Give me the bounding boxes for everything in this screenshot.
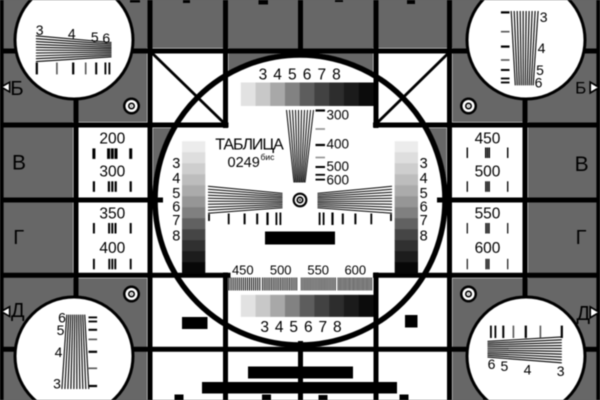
svg-text:6: 6: [102, 30, 110, 46]
svg-text:6: 6: [488, 356, 496, 372]
svg-text:3: 3: [557, 363, 565, 379]
svg-text:7: 7: [172, 213, 180, 229]
svg-text:6: 6: [303, 67, 312, 84]
svg-text:350: 350: [99, 206, 125, 223]
svg-text:4: 4: [273, 67, 282, 84]
svg-text:5: 5: [288, 67, 297, 84]
svg-text:ТАБЛИЦА: ТАБЛИЦА: [215, 137, 284, 154]
svg-text:3: 3: [259, 67, 268, 84]
svg-text:3: 3: [540, 9, 548, 25]
svg-text:4: 4: [55, 344, 63, 360]
svg-text:500: 500: [270, 263, 292, 278]
svg-text:В: В: [12, 152, 26, 175]
svg-text:3: 3: [53, 376, 61, 392]
svg-text:600: 600: [344, 263, 366, 278]
svg-text:Б: Б: [575, 79, 586, 98]
svg-text:5: 5: [289, 319, 298, 336]
svg-text:4: 4: [172, 171, 180, 187]
svg-text:5: 5: [501, 358, 509, 374]
svg-text:8: 8: [333, 319, 342, 336]
svg-text:300: 300: [327, 108, 350, 123]
svg-text:600: 600: [327, 173, 350, 188]
svg-text:Г: Г: [13, 227, 24, 249]
svg-text:6: 6: [535, 75, 543, 91]
svg-text:8: 8: [172, 229, 180, 245]
svg-text:5: 5: [91, 29, 99, 45]
svg-text:3: 3: [172, 156, 180, 172]
svg-text:3: 3: [420, 156, 428, 172]
svg-text:5: 5: [57, 322, 65, 338]
svg-text:550: 550: [307, 263, 329, 278]
svg-text:3: 3: [36, 22, 44, 38]
svg-text:Г: Г: [576, 227, 587, 249]
svg-text:4: 4: [538, 40, 546, 56]
svg-text:0249: 0249: [228, 155, 260, 171]
svg-text:6: 6: [304, 319, 313, 336]
svg-text:4: 4: [68, 25, 76, 41]
svg-text:4: 4: [275, 319, 284, 336]
svg-text:300: 300: [99, 163, 125, 180]
svg-text:7: 7: [317, 67, 326, 84]
svg-text:бис: бис: [261, 152, 276, 162]
svg-text:4: 4: [524, 362, 532, 378]
svg-text:3: 3: [260, 319, 269, 336]
svg-text:200: 200: [99, 131, 125, 148]
svg-text:450: 450: [232, 263, 254, 278]
svg-text:Б: Б: [10, 77, 23, 100]
svg-text:7: 7: [318, 319, 327, 336]
svg-text:8: 8: [420, 229, 428, 245]
svg-text:7: 7: [420, 213, 428, 229]
svg-text:400: 400: [99, 240, 125, 257]
svg-text:4: 4: [420, 171, 428, 187]
svg-text:550: 550: [475, 206, 501, 223]
svg-text:400: 400: [327, 137, 350, 152]
svg-text:600: 600: [475, 240, 501, 257]
svg-text:500: 500: [475, 163, 501, 180]
svg-text:Д: Д: [11, 300, 25, 322]
svg-text:Д: Д: [577, 303, 591, 325]
svg-text:В: В: [575, 153, 589, 176]
svg-text:8: 8: [332, 67, 341, 84]
svg-text:450: 450: [475, 131, 501, 148]
